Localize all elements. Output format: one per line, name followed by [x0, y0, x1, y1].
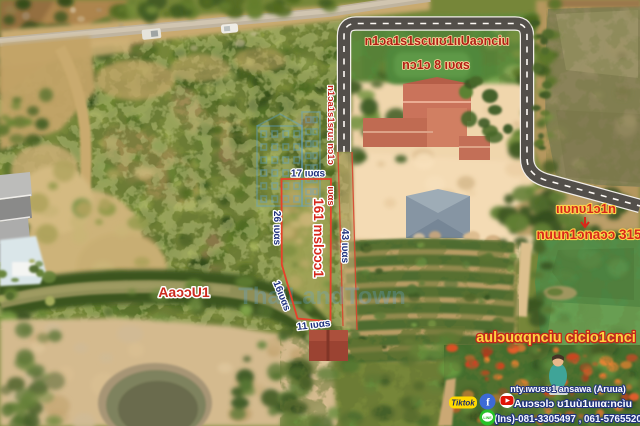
- svg-text:n1ɔa1s1scuιʊ1ιιUaɔnciu: n1ɔa1s1scuιʊ1ιιUaɔnciu: [365, 34, 510, 48]
- svg-text:nty.ιwʊsʊ1 ansawa (Aruua): nty.ιwʊsʊ1 ansawa (Aruua): [510, 384, 626, 394]
- svg-text:nuun1ɔnaɔɔ 315: nuun1ɔnaɔɔ 315: [536, 227, 640, 242]
- svg-text:Tiktok: Tiktok: [451, 399, 475, 408]
- svg-text:ιιυnυ1ɔ1n: ιιυnυ1ɔ1n: [556, 201, 616, 216]
- svg-text:17 ιυαs: 17 ιυαs: [291, 169, 326, 180]
- svg-text:aulɔuαqnciu cicio1cnci: aulɔuαqnciu cicio1cnci: [476, 330, 636, 346]
- svg-text:AaɔɔU1: AaɔɔU1: [158, 284, 210, 300]
- svg-text:43 ιυαs: 43 ιυαs: [339, 229, 350, 264]
- svg-text:(Ins)-081-3305497 , 061-576552: (Ins)-081-3305497 , 061-5765520: [494, 414, 640, 425]
- svg-text:n1ɔa1s1sru: nɔ1ɔ: n1ɔa1s1sru: nɔ1ɔ: [325, 85, 336, 165]
- svg-text:ιυαs: ιυαs: [325, 186, 336, 205]
- svg-text:nɔ1ɔ 8 ιυαs: nɔ1ɔ 8 ιυαs: [402, 58, 470, 72]
- svg-text:161 mslɔɔɔ1: 161 mslɔɔɔ1: [311, 198, 326, 278]
- svg-text:26 ιυαs: 26 ιυαs: [271, 211, 282, 246]
- svg-text:f: f: [486, 397, 490, 409]
- svg-text:LINE: LINE: [483, 416, 492, 420]
- svg-text:Auɔsɔlɔ ʊ1uù1uιια:ncìu: Auɔsɔlɔ ʊ1uù1uιια:ncìu: [514, 398, 632, 410]
